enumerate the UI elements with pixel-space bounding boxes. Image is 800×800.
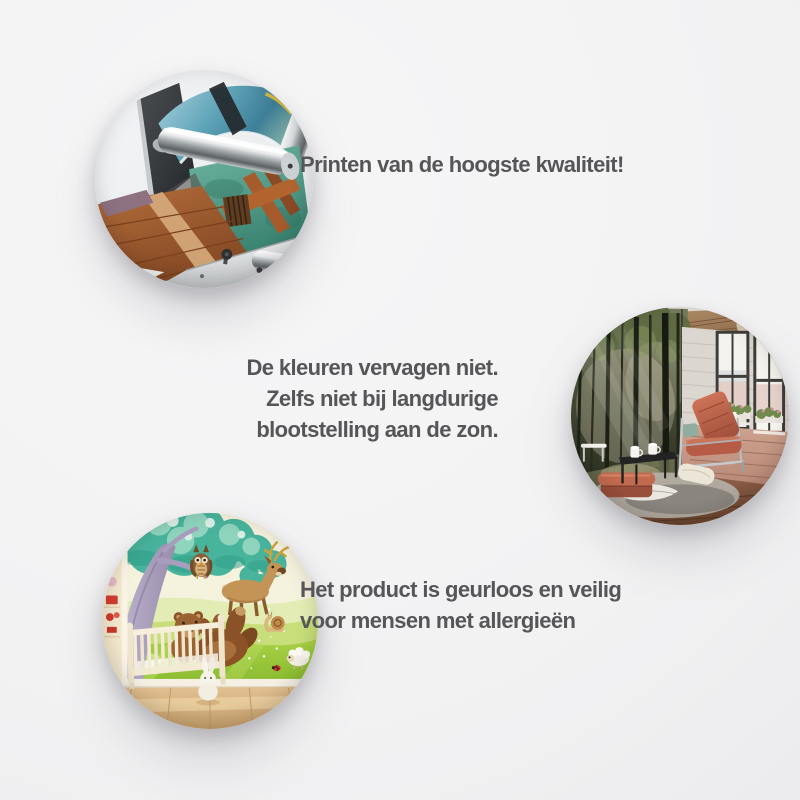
photo-printing-machine <box>95 70 313 288</box>
photo-vignette <box>571 307 789 525</box>
photo-forest-mural-interior <box>571 307 789 525</box>
caption-line: Het product is geurloos en veilig <box>300 574 621 605</box>
caption-line: blootstelling aan de zon. <box>246 414 498 445</box>
photo-vignette <box>95 70 313 288</box>
caption-line: De kleuren vervagen niet. <box>246 352 498 383</box>
photo-nursery-mural <box>102 513 318 729</box>
caption-fade-resistant: De kleuren vervagen niet. Zelfs niet bij… <box>246 352 498 445</box>
caption-line: Printen van de hoogste kwaliteit! <box>300 149 624 180</box>
caption-odorless-safe: Het product is geurloos en veilig voor m… <box>300 574 621 636</box>
caption-print-quality: Printen van de hoogste kwaliteit! <box>300 149 624 180</box>
promo-infographic: Printen van de hoogste kwaliteit! <box>0 0 800 800</box>
caption-line: Zelfs niet bij langdurige <box>246 383 498 414</box>
photo-vignette <box>102 513 318 729</box>
caption-line: voor mensen met allergieën <box>300 605 621 636</box>
